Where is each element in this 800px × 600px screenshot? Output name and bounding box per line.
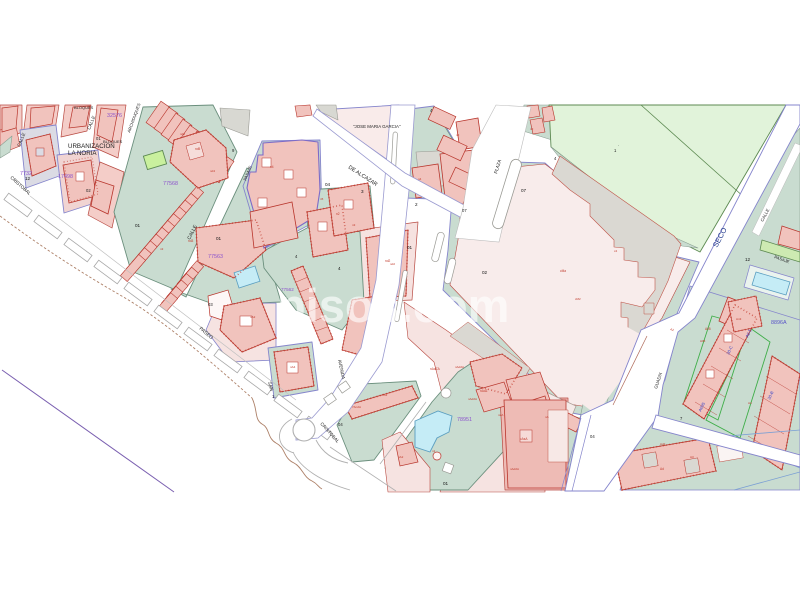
svg-text:BLOQUES: BLOQUES	[74, 105, 94, 110]
svg-text:Ad2: Ad2	[660, 442, 666, 446]
svg-text:.: .	[618, 142, 619, 147]
svg-text:n5: n5	[320, 197, 324, 201]
svg-text:02: 02	[86, 188, 91, 193]
svg-text:A05: A05	[705, 327, 711, 331]
svg-text:n4: n4	[270, 165, 274, 169]
svg-text:Ad: Ad	[660, 467, 664, 471]
svg-text:nAd2A: nAd2A	[510, 467, 519, 471]
svg-text:04: 04	[325, 182, 331, 187]
svg-text:04: 04	[590, 434, 595, 439]
svg-text:pisos.com: pisos.com	[277, 279, 509, 332]
svg-text:01: 01	[135, 223, 141, 228]
svg-text:04: 04	[338, 422, 343, 427]
svg-text:nA2: nA2	[398, 455, 404, 459]
svg-text:nd2: nd2	[180, 132, 185, 136]
svg-text:nA: nA	[545, 415, 549, 419]
svg-text:78951: 78951	[457, 417, 472, 423]
svg-text:n2: n2	[336, 212, 340, 216]
svg-text:03: 03	[208, 302, 213, 307]
svg-text:nA4: nA4	[290, 365, 296, 369]
svg-text:7An2A: 7An2A	[352, 405, 361, 409]
svg-text:A3: A3	[690, 455, 694, 459]
svg-text:n4: n4	[418, 177, 422, 181]
svg-text:2: 2	[415, 202, 418, 207]
svg-text:01: 01	[407, 245, 413, 250]
svg-text:32576: 32576	[107, 113, 122, 119]
svg-text:nA2: nA2	[250, 315, 256, 319]
svg-text:n3: n3	[160, 247, 164, 251]
svg-text:07: 07	[521, 188, 527, 193]
svg-text:01: 01	[96, 136, 101, 141]
svg-text:n2: n2	[456, 133, 460, 137]
svg-text:n2: n2	[530, 127, 534, 131]
svg-text:nd3: nd3	[188, 239, 194, 243]
svg-text:LA NORIA: LA NORIA	[68, 150, 97, 157]
svg-text:n1: n1	[432, 449, 436, 453]
svg-text:A05: A05	[700, 339, 706, 343]
svg-text:n3: n3	[352, 223, 356, 227]
svg-text:"JOSE MARIA GARCIA": "JOSE MARIA GARCIA"	[353, 124, 401, 129]
svg-text:7A2: 7A2	[382, 393, 388, 397]
svg-text:17498: 17498	[58, 174, 73, 180]
svg-text:cM2: cM2	[575, 297, 581, 301]
svg-text:cAsA: cAsA	[520, 437, 528, 441]
svg-text:An3: An3	[736, 317, 742, 321]
svg-text:A4: A4	[748, 401, 752, 405]
svg-text:4: 4	[338, 266, 341, 271]
svg-text:3: 3	[361, 189, 364, 194]
svg-text:8896A: 8896A	[771, 320, 787, 326]
svg-text:nd5: nd5	[195, 147, 201, 151]
svg-text:nAd2A: nAd2A	[455, 365, 464, 369]
svg-text:01: 01	[216, 236, 222, 241]
svg-text:nAdZA: nAdZA	[430, 367, 441, 371]
svg-text:n2A: n2A	[498, 413, 503, 417]
svg-text:nd2: nd2	[390, 262, 395, 266]
svg-text:BLOQUES: BLOQUES	[103, 139, 123, 144]
svg-text:nAdZ: nAdZ	[480, 389, 488, 393]
svg-text:URBANIZACION: URBANIZACION	[68, 143, 115, 150]
svg-text:77563: 77563	[208, 254, 223, 260]
svg-text:cMa: cMa	[560, 269, 566, 273]
svg-text:nAd2A: nAd2A	[468, 397, 477, 401]
svg-text:02: 02	[482, 270, 488, 275]
svg-text:c4: c4	[614, 249, 618, 253]
svg-text:07: 07	[462, 208, 467, 213]
svg-text:12: 12	[25, 176, 31, 181]
svg-text:nd4: nd4	[210, 169, 215, 173]
svg-text:01: 01	[443, 481, 449, 486]
svg-text:12: 12	[745, 257, 751, 262]
svg-text:77568: 77568	[163, 181, 178, 187]
